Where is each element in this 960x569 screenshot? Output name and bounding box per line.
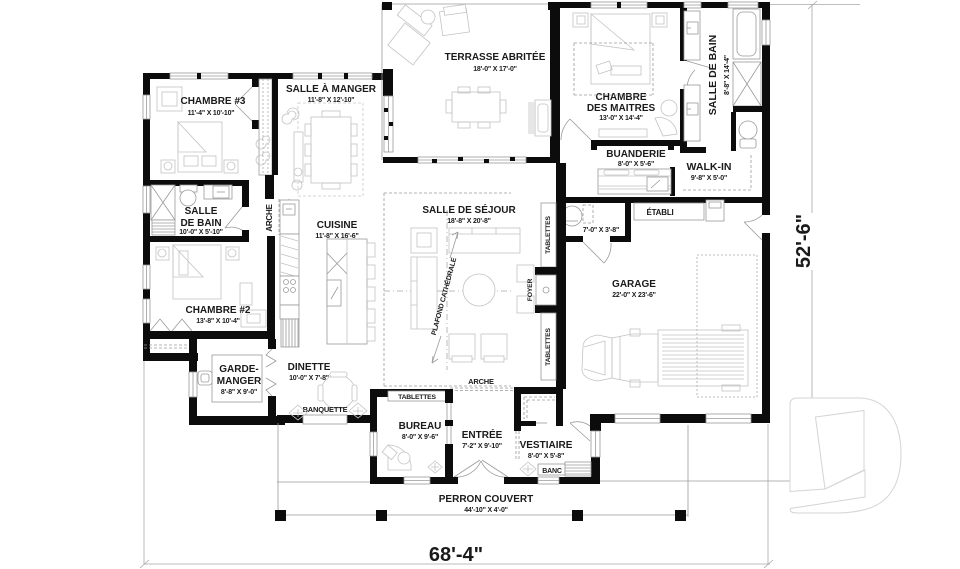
svg-text:DINETTE: DINETTE [288,362,331,373]
svg-text:SALLE DE BAIN: SALLE DE BAIN [707,35,719,116]
svg-text:9'-8" X 5'-0": 9'-8" X 5'-0" [691,175,727,182]
svg-text:7'-2" X 9'-10": 7'-2" X 9'-10" [462,443,502,450]
svg-text:52'-6": 52'-6" [793,214,815,268]
svg-text:VESTIAIRE: VESTIAIRE [520,440,573,451]
svg-text:SALLE DE SÉJOUR: SALLE DE SÉJOUR [422,203,516,216]
svg-text:10'-0" X 5'-10": 10'-0" X 5'-10" [179,229,223,236]
svg-text:BANQUETTE: BANQUETTE [303,405,348,414]
svg-text:SALLE À MANGER: SALLE À MANGER [286,82,377,95]
svg-text:WALK-IN: WALK-IN [687,161,732,173]
svg-text:18'-8" X 20'-8": 18'-8" X 20'-8" [447,218,491,225]
svg-text:BUREAU: BUREAU [399,421,442,432]
svg-text:CHAMBRE #2: CHAMBRE #2 [185,305,250,316]
svg-text:ENTRÉE: ENTRÉE [462,428,503,441]
svg-text:BANC: BANC [542,468,562,475]
svg-text:DE BAIN: DE BAIN [180,218,221,229]
svg-text:TABLETTES: TABLETTES [545,215,552,253]
svg-text:13'-0" X 14'-4": 13'-0" X 14'-4" [599,115,643,122]
svg-text:7'-0" X 3'-8": 7'-0" X 3'-8" [583,227,619,234]
svg-text:CHAMBRE: CHAMBRE [595,92,646,103]
svg-text:TERRASSE ABRITÉE: TERRASSE ABRITÉE [445,50,546,63]
svg-text:10'-0" X 7'-8": 10'-0" X 7'-8" [289,375,329,382]
svg-text:ARCHE: ARCHE [468,377,494,386]
svg-text:PERRON COUVERT: PERRON COUVERT [439,494,533,505]
svg-text:8'-0" X 9'-6": 8'-0" X 9'-6" [402,434,438,441]
svg-text:44'-10" X 4'-0": 44'-10" X 4'-0" [464,507,508,514]
svg-text:68'-4": 68'-4" [429,544,483,566]
svg-text:TABLETTES: TABLETTES [398,394,436,401]
svg-text:22'-0" X 23'-6": 22'-0" X 23'-6" [612,292,656,299]
svg-text:BUANDERIE: BUANDERIE [606,149,666,160]
svg-text:ARCHE: ARCHE [265,203,274,231]
svg-text:8'-8" X 14'-4": 8'-8" X 14'-4" [724,55,731,95]
svg-text:18'-0" X 17'-0": 18'-0" X 17'-0" [473,66,517,73]
svg-text:8'-0" X 5'-6": 8'-0" X 5'-6" [618,161,654,168]
svg-text:8'-0" X 5'-8": 8'-0" X 5'-8" [528,453,564,460]
svg-text:SALLE: SALLE [185,206,218,217]
svg-text:TABLETTES: TABLETTES [545,327,552,365]
svg-text:GARAGE: GARAGE [612,279,656,290]
svg-text:FOYER: FOYER [527,279,534,302]
svg-text:13'-8" X 10'-4": 13'-8" X 10'-4" [196,318,240,325]
svg-text:CHAMBRE #3: CHAMBRE #3 [180,96,245,107]
svg-text:MANGER: MANGER [217,376,262,387]
svg-text:11'-4" X 10'-10": 11'-4" X 10'-10" [188,110,235,117]
svg-text:ÉTABLI: ÉTABLI [646,208,673,217]
svg-text:CUISINE: CUISINE [317,220,358,231]
svg-text:DES MAITRES: DES MAITRES [587,103,656,114]
svg-text:8'-8" X 9'-0": 8'-8" X 9'-0" [221,389,257,396]
svg-text:GARDE-: GARDE- [219,364,258,375]
